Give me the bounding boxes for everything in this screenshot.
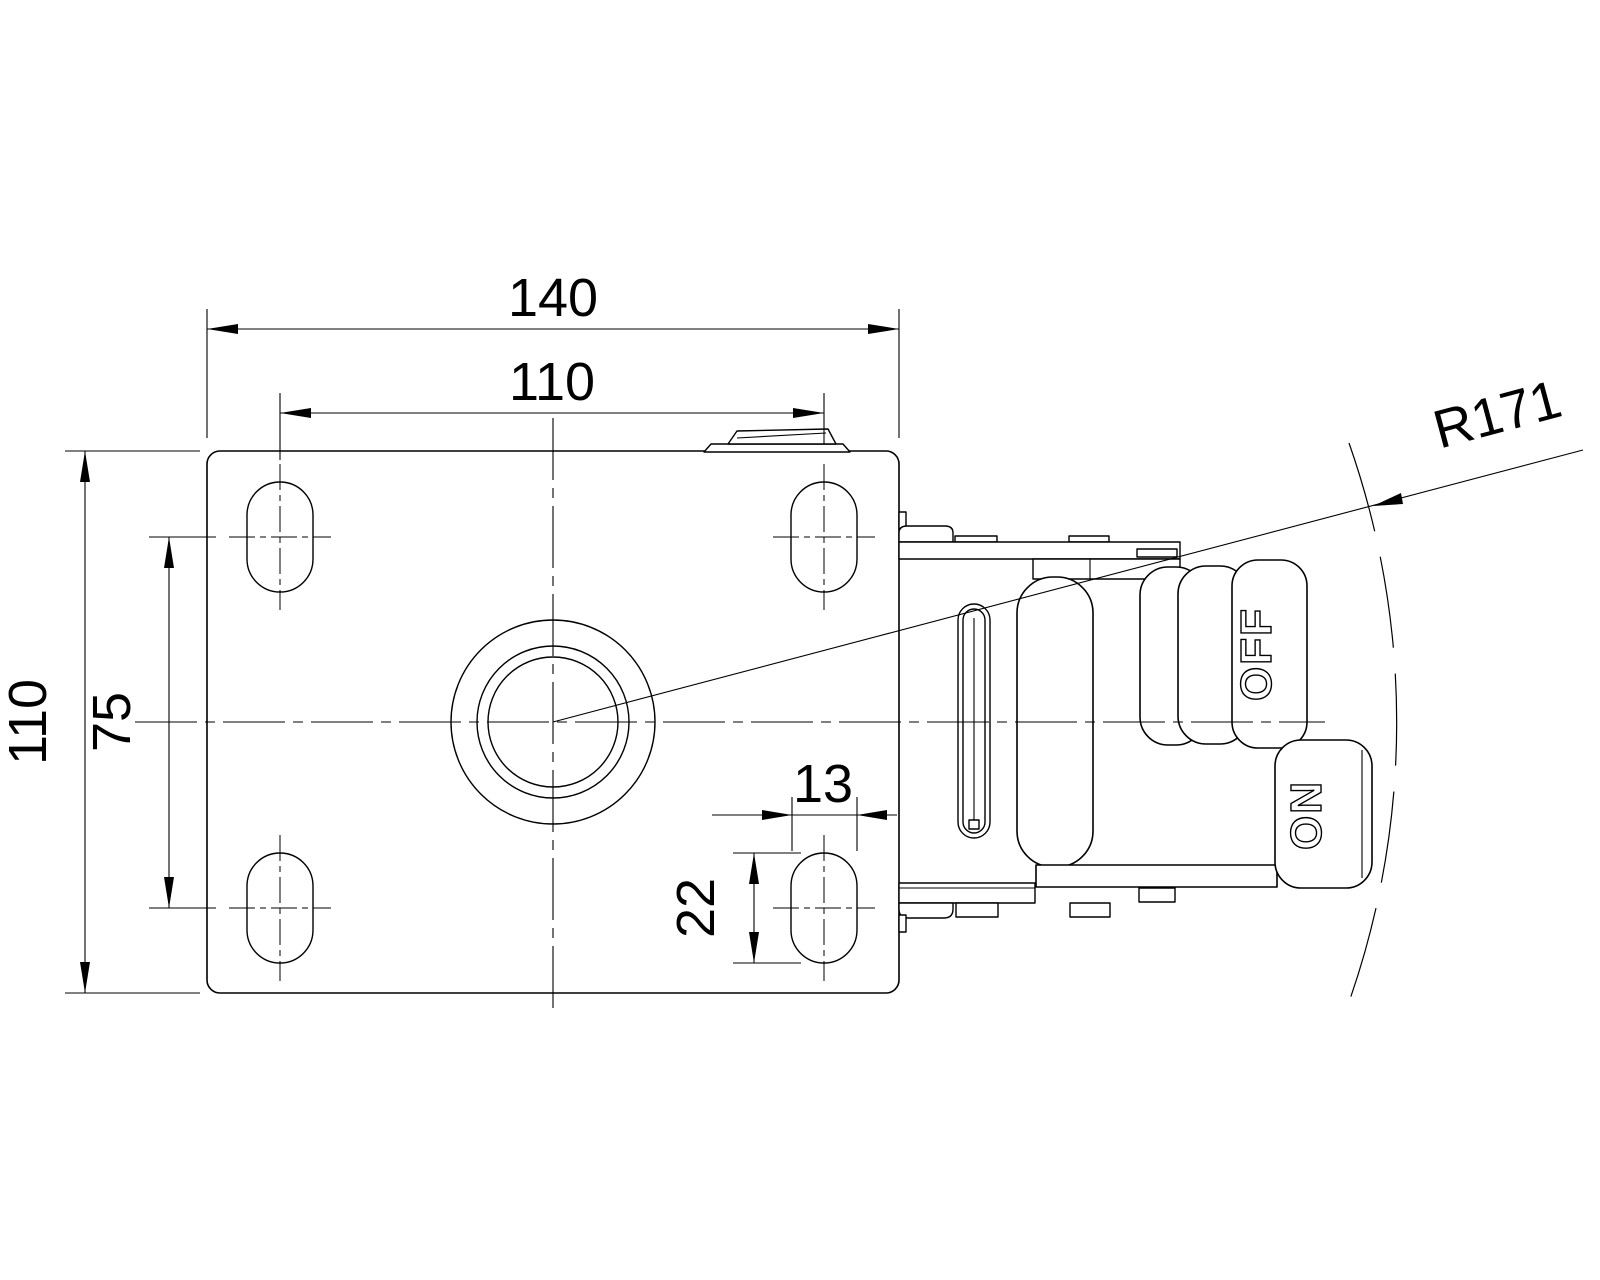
dim-plate-depth-arrow-bottom (80, 962, 90, 993)
dim-hole-spacing-x-arrow-left (280, 408, 311, 418)
caster-drawing-svg: OFF ON (0, 0, 1600, 1280)
pedal-arm-lower (1036, 865, 1277, 887)
swing-arc (1349, 443, 1397, 1002)
dim-slot-width-text: 13 (793, 754, 853, 814)
on-pedal-label: ON (1282, 780, 1331, 850)
dim-swivel-radius-arrow (1373, 493, 1403, 506)
bottom-hump (899, 903, 953, 918)
bottom-lug-2 (1070, 903, 1110, 917)
dim-plate-width-arrow-right (868, 324, 899, 334)
dim-hole-spacing-y-text: 75 (82, 692, 142, 752)
dim-hole-spacing-y-arrow-top (164, 537, 174, 568)
dim-hole-spacing-x-arrow-right (793, 408, 824, 418)
dim-plate-width-arrow-left (207, 324, 238, 334)
top-lug-2 (1069, 536, 1109, 542)
bottom-lug-3 (1139, 888, 1175, 902)
dim-plate-depth-arrow-top (80, 451, 90, 482)
dim-plate-depth-text: 110 (0, 679, 58, 765)
top-hump (899, 526, 953, 542)
dim-swivel-radius-text: R171 (1427, 369, 1567, 460)
fork-bottom-flange (899, 883, 1035, 903)
swivel-lock-base (704, 444, 850, 452)
bottom-lug-1 (956, 903, 998, 917)
bottom-edge-tab (899, 915, 906, 932)
top-lug-3 (1137, 549, 1177, 557)
brake-spring-notch (969, 820, 979, 829)
dim-slot-length-text: 22 (666, 878, 726, 938)
top-lug-1 (955, 536, 997, 542)
technical-drawing-canvas: OFF ON (0, 0, 1600, 1280)
dim-hole-spacing-x-text: 110 (509, 352, 595, 412)
swivel-lock-lever (728, 429, 836, 444)
swivel-radius-arc (1349, 443, 1397, 1002)
off-pedal-label: OFF (1232, 607, 1281, 701)
dim-hole-spacing-y-arrow-bottom (164, 877, 174, 908)
dim-plate-width-text: 140 (508, 268, 598, 328)
